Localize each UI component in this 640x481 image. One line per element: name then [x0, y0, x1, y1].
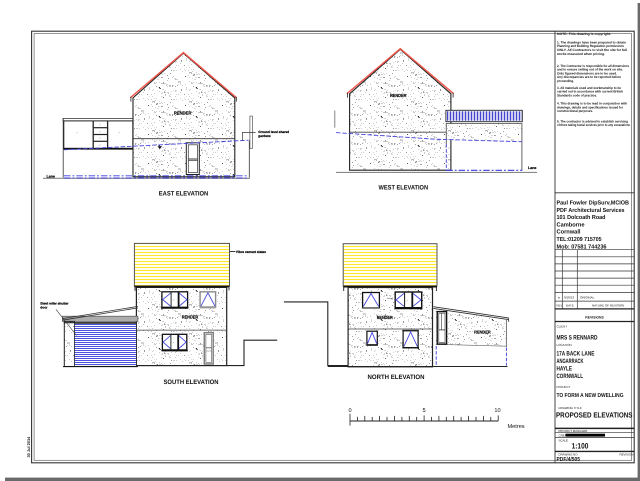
svg-text:LOCATION: LOCATION [557, 343, 572, 347]
svg-text:5: 5 [423, 408, 426, 414]
svg-text:Lane: Lane [528, 166, 536, 170]
svg-text:PDF/4/505: PDF/4/505 [557, 456, 581, 463]
svg-text:CLIENT: CLIENT [557, 324, 568, 328]
svg-text:EAST ELEVATION: EAST ELEVATION [159, 190, 209, 197]
svg-text:RENDER: RENDER [390, 93, 407, 98]
svg-text:DRAWING NO: DRAWING NO [559, 452, 579, 456]
svg-text:WEST ELEVATION: WEST ELEVATION [379, 184, 429, 191]
svg-text:0: 0 [348, 408, 351, 414]
svg-text:PROPOSED ELEVATIONS: PROPOSED ELEVATIONS [556, 410, 633, 419]
svg-text:SCALE: SCALE [559, 438, 569, 442]
svg-text:Cornwall: Cornwall [557, 229, 581, 236]
svg-text:DATE: DATE [566, 303, 574, 307]
svg-text:CORNWALL: CORNWALL [557, 373, 584, 380]
svg-text:Camborne: Camborne [557, 221, 586, 228]
svg-text:TO FORM A NEW DWELLING: TO FORM A NEW DWELLING [557, 393, 624, 399]
svg-text:Standards code of practice.: Standards code of practice. [557, 93, 597, 97]
svg-text:REVISIONS: REVISIONS [585, 315, 604, 319]
svg-text:constructional purposes.: constructional purposes. [557, 109, 593, 113]
svg-text:9/10/13: 9/10/13 [564, 296, 574, 300]
svg-text:PDF Architectural Services: PDF Architectural Services [557, 207, 626, 214]
svg-text:NORTH ELEVATION: NORTH ELEVATION [368, 374, 425, 381]
svg-text:Paul Fowler DipSurv,MCIOB: Paul Fowler DipSurv,MCIOB [557, 200, 630, 207]
svg-text:RENDER: RENDER [474, 330, 491, 335]
svg-text:Mob: 07581 744236: Mob: 07581 744236 [557, 243, 608, 250]
svg-text:RENDER: RENDER [174, 111, 192, 116]
svg-text:RENDER: RENDER [377, 315, 394, 320]
svg-text:works measured when pricing.: works measured when pricing. [556, 52, 605, 56]
svg-text:Lane: Lane [47, 174, 55, 178]
svg-text:NOTE: This drawing is copyrig: NOTE: This drawing is copyright. [557, 32, 611, 36]
svg-text:REV: REV [557, 303, 563, 307]
svg-text:ANGARRACK: ANGARRACK [557, 358, 584, 365]
svg-text:DRAWING TITLE: DRAWING TITLE [559, 406, 582, 410]
svg-text:10: 10 [494, 408, 500, 414]
svg-text:NATURE OF REVISION: NATURE OF REVISION [592, 303, 624, 307]
svg-text:SOUTH ELEVATION: SOUTH ELEVATION [164, 379, 219, 386]
svg-text:gardens: gardens [258, 134, 271, 138]
svg-text:TEL:01209 715705: TEL:01209 715705 [557, 236, 603, 243]
svg-text:MRS S RENNARD: MRS S RENNARD [557, 334, 598, 341]
svg-text:HAYLE: HAYLE [557, 366, 573, 373]
svg-text:17A BACK LANE: 17A BACK LANE [557, 351, 595, 358]
svg-text:ORIGINAL: ORIGINAL [580, 296, 595, 300]
svg-text:of there taking burial service: of there taking burial services prior to… [557, 123, 630, 127]
svg-text:Fibre cement slates: Fibre cement slates [236, 250, 266, 254]
svg-text:101 Dolcoath Road: 101 Dolcoath Road [557, 214, 606, 221]
svg-text:PROJECT MANAGER: PROJECT MANAGER [559, 429, 588, 433]
svg-text:PROJECT: PROJECT [557, 385, 571, 389]
svg-text:RENDER: RENDER [182, 314, 199, 319]
svg-text:Metres: Metres [508, 424, 525, 430]
svg-text:REVISION: REVISION [620, 452, 634, 456]
svg-text:door: door [40, 305, 48, 309]
svg-text:proceeding.: proceeding. [557, 79, 574, 83]
svg-text:1:100: 1:100 [572, 441, 589, 450]
svg-text:30 Jul 2014: 30 Jul 2014 [26, 436, 31, 458]
